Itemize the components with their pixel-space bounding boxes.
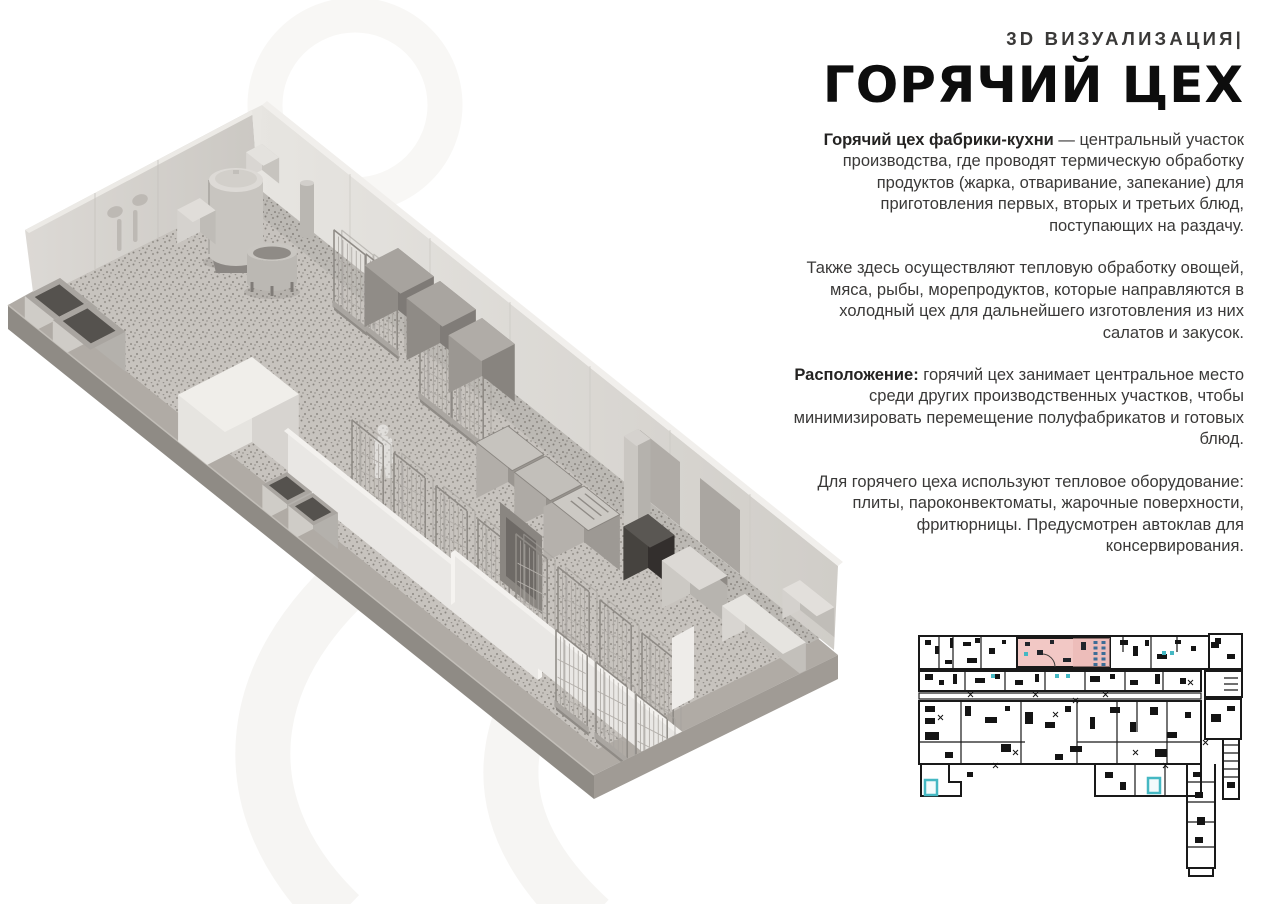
kicker: 3D ВИЗУАЛИЗАЦИЯ| (792, 28, 1244, 50)
paragraph-lead: Расположение: (794, 366, 918, 384)
paragraph-text: Для горячего цеха используют тепловое об… (817, 473, 1244, 555)
hot-shop-highlight (1017, 638, 1110, 667)
bowl-kettle (244, 243, 300, 299)
text-column: 3D ВИЗУАЛИЗАЦИЯ| ГОРЯЧИЙ ЦЕХ Горячий цех… (792, 28, 1244, 557)
wall-slot (133, 210, 138, 242)
body-paragraph: Расположение: горячий цех занимает центр… (792, 365, 1244, 451)
description: Горячий цех фабрики-кухни — центральный … (792, 130, 1244, 557)
pipe-column (300, 180, 314, 238)
paragraph-text: Также здесь осуществляют тепловую обрабо… (806, 259, 1244, 341)
body-paragraph: Также здесь осуществляют тепловую обрабо… (792, 258, 1244, 344)
body-paragraph: Для горячего цеха используют тепловое об… (792, 472, 1244, 558)
wall-slot (117, 219, 122, 251)
panel (672, 626, 694, 710)
paragraph-lead: Горячий цех фабрики-кухни (824, 131, 1054, 149)
hot-shop-3d-render (0, 70, 845, 805)
slide: 3D ВИЗУАЛИЗАЦИЯ| ГОРЯЧИЙ ЦЕХ Горячий цех… (0, 0, 1278, 904)
floorplan (905, 622, 1277, 904)
building-outline (919, 634, 1242, 876)
body-paragraph: Горячий цех фабрики-кухни — центральный … (792, 130, 1244, 237)
page-title: ГОРЯЧИЙ ЦЕХ (792, 60, 1244, 110)
